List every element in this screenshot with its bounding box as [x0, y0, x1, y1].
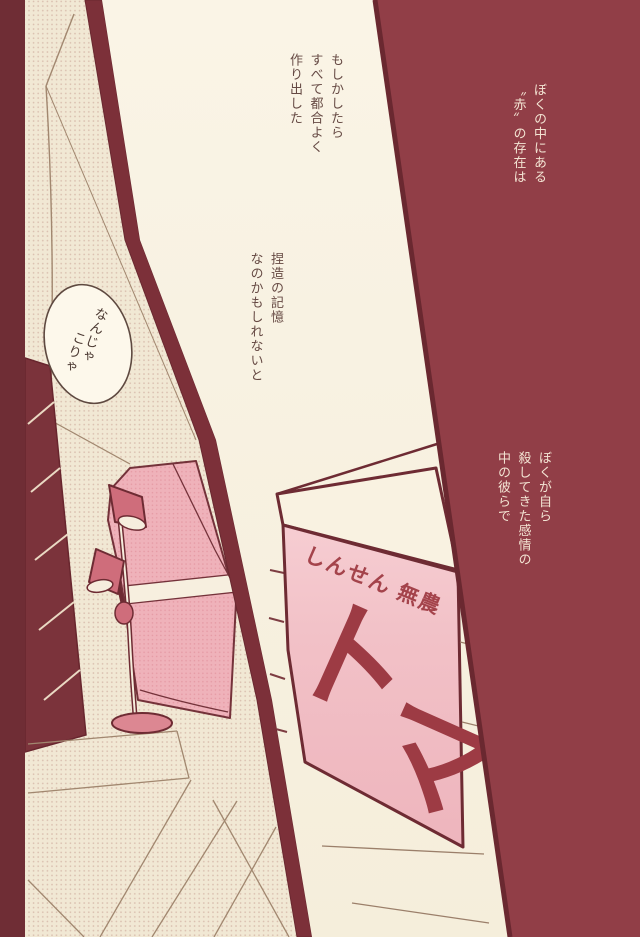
narration-line: もしかしたら: [325, 53, 346, 155]
narration-block-1: もしかしたら すべて都合よく 作り出した: [284, 53, 346, 155]
narration-line: 中の彼らで: [492, 451, 513, 567]
narration-line: ぼくが自ら: [533, 451, 554, 567]
narration-block-2: 捏造の記憶 なのかもしれないと: [245, 252, 286, 383]
narration-line: すべて都合よく: [305, 53, 326, 155]
narration-line: 捏造の記憶: [265, 252, 286, 383]
narration-line: 作り出した: [284, 53, 305, 155]
manga-page: しんせん 無農 ト マ もしかしたら すべて都合よく 作り出した 捏造の記憶 な…: [0, 0, 640, 937]
narration-line: 〝赤〟の存在は: [508, 83, 529, 185]
lamp-joint: [115, 602, 133, 624]
narration-line: なのかもしれないと: [245, 252, 266, 383]
left-page-border: [0, 0, 25, 937]
narration-block-3: ぼくの中にある 〝赤〟の存在は: [508, 83, 549, 185]
narration-block-4: ぼくが自ら 殺してきた感情の 中の彼らで: [492, 451, 554, 567]
narration-line: 殺してきた感情の: [513, 451, 534, 567]
lamp-base: [112, 713, 172, 733]
narration-line: ぼくの中にある: [528, 83, 549, 185]
